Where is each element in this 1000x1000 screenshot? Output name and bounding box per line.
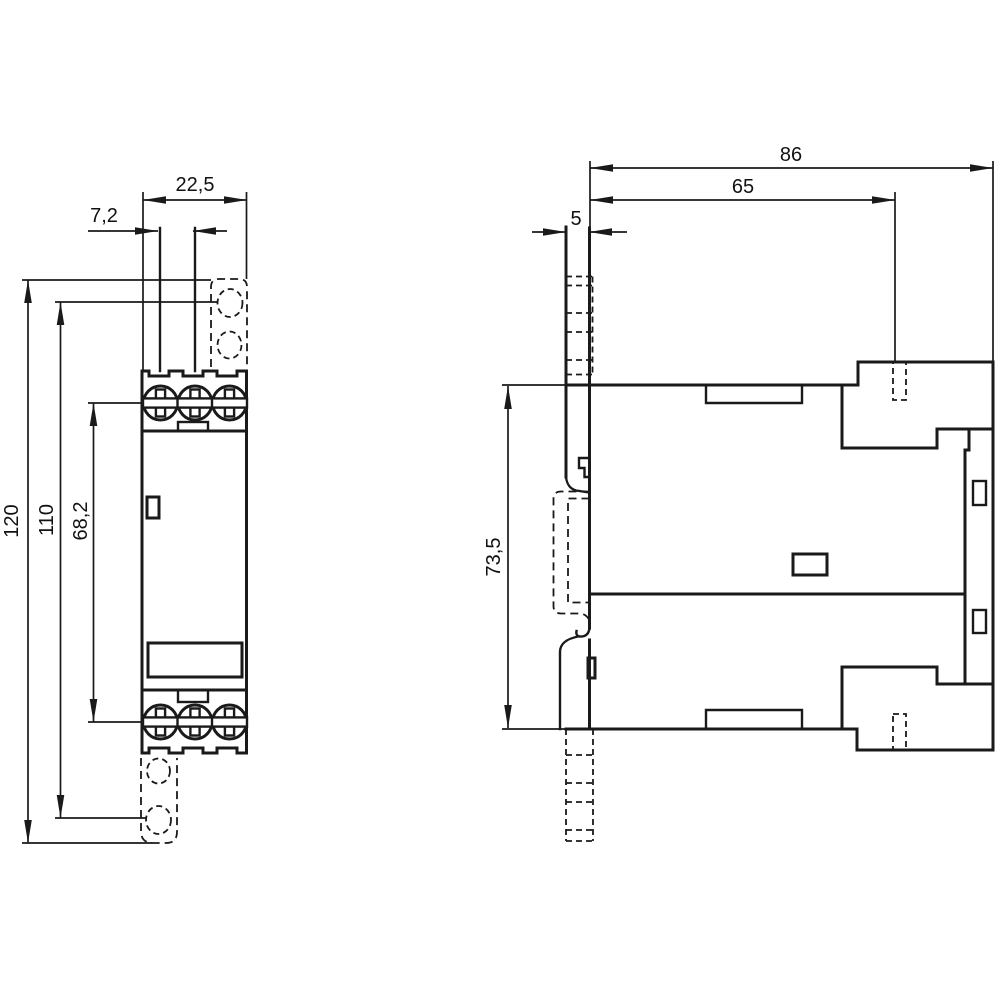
din-rail-profile (554, 492, 590, 622)
dim-front-screw-span: 68,2 (70, 403, 97, 722)
front-terminal-screws-bottom (143, 705, 247, 739)
screw-icon (212, 386, 247, 420)
side-vent-slot (973, 481, 986, 505)
clip-hole-icon (146, 806, 171, 834)
front-terminal-screws-top (143, 386, 247, 420)
side-view (554, 227, 994, 841)
side-detail-rect (793, 554, 827, 575)
dim-side-depth: 86 (590, 144, 993, 172)
flange-screw-holes (893, 362, 906, 750)
dim-label-front-pitch: 7,2 (90, 205, 118, 227)
dim-label-front-width: 22,5 (176, 174, 215, 196)
dim-label-side-body-depth: 65 (732, 176, 754, 198)
dim-front-pitch: 7,2 (88, 205, 227, 235)
screw-icon (178, 705, 213, 739)
dim-front-clip-height: 110 (36, 302, 64, 818)
dim-label-front-height: 120 (1, 504, 23, 537)
side-terminal-strip-bottom (566, 729, 593, 841)
front-view (141, 228, 247, 843)
clip-hole-icon (218, 332, 242, 359)
din-clip-tab-top (211, 279, 247, 367)
dim-side-body-depth: 65 (590, 176, 895, 204)
dim-label-side-depth: 86 (780, 144, 802, 166)
screw-icon (143, 386, 178, 420)
dimensions: 22,5 7,2 120 110 (1, 144, 993, 843)
screw-icon (178, 386, 213, 420)
dim-label-front-screw-span: 68,2 (70, 502, 92, 541)
front-housing-outline (142, 371, 247, 753)
dim-label-side-strip-depth: 5 (570, 208, 581, 230)
side-body-outline (566, 362, 993, 750)
dimension-drawing: 22,5 7,2 120 110 (0, 0, 1000, 1000)
dim-front-height: 120 (1, 280, 32, 843)
screw-icon (212, 705, 247, 739)
front-slot (147, 497, 159, 518)
front-label-window (148, 643, 242, 677)
front-terminal-separators (160, 228, 195, 371)
din-clip-tab-bottom (141, 758, 177, 843)
clip-hole-icon (147, 759, 170, 784)
side-vent-slot (973, 610, 986, 633)
dim-side-height: 73,5 (483, 386, 512, 728)
dim-label-front-clip-height: 110 (36, 504, 58, 536)
dimension-drawing-page: 22,5 7,2 120 110 (0, 0, 1000, 1000)
screw-icon (143, 705, 178, 739)
dim-side-strip-depth: 5 (532, 208, 627, 236)
dim-label-side-height: 73,5 (483, 538, 505, 577)
clip-hole-icon (218, 289, 243, 317)
side-small-slot (588, 658, 595, 678)
